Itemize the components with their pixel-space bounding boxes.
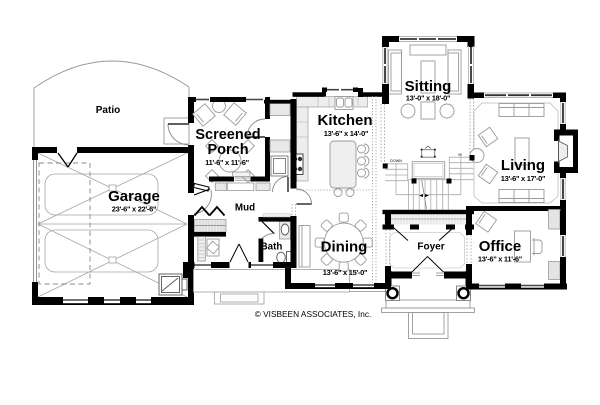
svg-text:13'-6" x 14'-0": 13'-6" x 14'-0"	[324, 129, 369, 138]
svg-text:13'-0" x 18'-0": 13'-0" x 18'-0"	[406, 94, 451, 103]
svg-text:Foyer: Foyer	[417, 242, 444, 253]
svg-text:11'-6" x 11'-6": 11'-6" x 11'-6"	[205, 158, 249, 167]
svg-text:Porch: Porch	[207, 142, 248, 158]
svg-text:23'-6" x 22'-6": 23'-6" x 22'-6"	[112, 205, 157, 214]
svg-text:Garage: Garage	[108, 188, 160, 205]
svg-text:13'-6" x 17'-0": 13'-6" x 17'-0"	[501, 174, 546, 183]
svg-text:Dining: Dining	[321, 239, 368, 256]
svg-text:Screened: Screened	[195, 127, 260, 143]
svg-text:Mud: Mud	[235, 203, 255, 214]
svg-text:Patio: Patio	[96, 105, 120, 116]
svg-text:Bath: Bath	[261, 241, 283, 252]
svg-text:DOWN: DOWN	[390, 159, 402, 163]
svg-text:Office: Office	[479, 238, 522, 255]
svg-text:Living: Living	[501, 157, 545, 174]
svg-text:Kitchen: Kitchen	[317, 112, 372, 129]
svg-text:Sitting: Sitting	[405, 78, 452, 95]
svg-text:up: up	[458, 153, 462, 157]
svg-text:13'-6" x 11'-6": 13'-6" x 11'-6"	[478, 255, 523, 264]
svg-text:13'-6" x 15'-0": 13'-6" x 15'-0"	[323, 268, 368, 277]
svg-text:© VISBEEN ASSOCIATES, Inc.: © VISBEEN ASSOCIATES, Inc.	[255, 309, 372, 319]
